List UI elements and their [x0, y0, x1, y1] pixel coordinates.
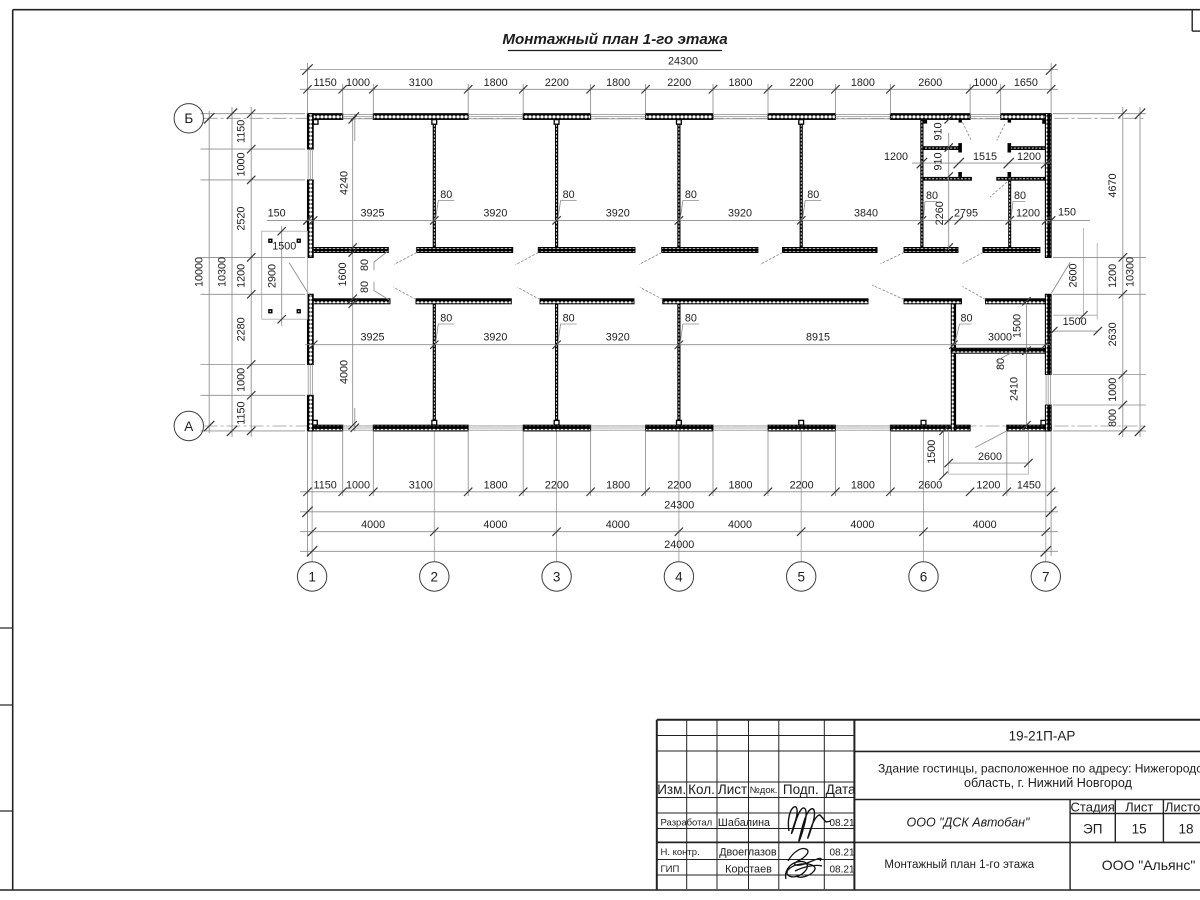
svg-text:2900: 2900 — [267, 264, 279, 288]
svg-text:4000: 4000 — [606, 519, 630, 531]
svg-text:1800: 1800 — [728, 77, 752, 89]
svg-text:150: 150 — [1058, 206, 1076, 218]
svg-text:80: 80 — [807, 189, 819, 201]
svg-text:Стадия: Стадия — [1071, 800, 1115, 815]
svg-text:10300: 10300 — [1125, 257, 1137, 287]
svg-text:2630: 2630 — [1107, 322, 1119, 346]
svg-text:80: 80 — [440, 312, 452, 324]
svg-text:08.21: 08.21 — [829, 818, 854, 829]
svg-text:3920: 3920 — [483, 332, 507, 344]
svg-text:ЭП: ЭП — [1083, 822, 1102, 837]
svg-text:80: 80 — [440, 189, 452, 201]
svg-text:Изм.: Изм. — [657, 782, 686, 797]
svg-text:80: 80 — [685, 312, 697, 324]
svg-text:2795: 2795 — [954, 207, 978, 219]
svg-text:ООО "Альянс": ООО "Альянс" — [1102, 857, 1196, 873]
svg-text:4000: 4000 — [483, 519, 507, 531]
svg-text:1515: 1515 — [973, 151, 997, 163]
svg-text:А: А — [184, 419, 193, 434]
svg-text:24300: 24300 — [664, 499, 694, 511]
svg-text:2200: 2200 — [790, 77, 814, 89]
svg-text:1650: 1650 — [1014, 77, 1038, 89]
svg-text:4000: 4000 — [361, 519, 385, 531]
svg-text:1200: 1200 — [1016, 207, 1040, 219]
svg-text:1000: 1000 — [346, 77, 370, 89]
svg-text:1800: 1800 — [851, 479, 875, 491]
svg-text:Коротаев: Коротаев — [725, 863, 772, 875]
svg-text:Н. контр.: Н. контр. — [661, 847, 700, 858]
svg-text:19-21П-АР: 19-21П-АР — [1009, 729, 1076, 744]
svg-text:80: 80 — [563, 312, 575, 324]
svg-text:1800: 1800 — [484, 479, 508, 491]
svg-text:1600: 1600 — [337, 262, 349, 286]
svg-text:1000: 1000 — [346, 479, 370, 491]
svg-text:2260: 2260 — [934, 201, 946, 225]
svg-text:3920: 3920 — [483, 207, 507, 219]
svg-text:910: 910 — [933, 152, 945, 170]
svg-text:3920: 3920 — [606, 332, 630, 344]
svg-text:80: 80 — [926, 190, 938, 202]
svg-text:18: 18 — [1178, 822, 1193, 837]
svg-text:2600: 2600 — [918, 77, 942, 89]
svg-text:1150: 1150 — [236, 401, 248, 424]
svg-text:800: 800 — [1107, 409, 1119, 427]
svg-text:80: 80 — [563, 189, 575, 201]
svg-text:4000: 4000 — [728, 519, 752, 531]
svg-text:Лист: Лист — [718, 782, 747, 797]
svg-text:область, г. Нижний Новгород: область, г. Нижний Новгород — [964, 776, 1133, 790]
svg-text:80: 80 — [359, 259, 371, 271]
svg-text:6: 6 — [920, 569, 928, 584]
svg-text:80: 80 — [960, 312, 972, 324]
svg-text:1200: 1200 — [236, 264, 248, 288]
svg-text:№док.: №док. — [750, 785, 778, 796]
svg-text:2600: 2600 — [978, 451, 1002, 463]
svg-text:1800: 1800 — [728, 479, 752, 491]
svg-text:1200: 1200 — [884, 151, 908, 163]
svg-text:15: 15 — [1132, 822, 1147, 837]
svg-text:3925: 3925 — [360, 332, 384, 344]
svg-text:2600: 2600 — [1068, 263, 1080, 287]
svg-text:4000: 4000 — [850, 519, 874, 531]
svg-text:1500: 1500 — [1012, 314, 1024, 338]
svg-text:1150: 1150 — [313, 77, 336, 89]
svg-text:Шабалина: Шабалина — [718, 817, 770, 829]
svg-text:2200: 2200 — [667, 479, 691, 491]
svg-text:1: 1 — [308, 569, 316, 584]
svg-text:4670: 4670 — [1107, 174, 1119, 198]
svg-text:3100: 3100 — [409, 77, 433, 89]
svg-text:1000: 1000 — [1107, 378, 1119, 402]
svg-text:1500: 1500 — [1063, 316, 1087, 328]
svg-text:Кол.: Кол. — [688, 782, 715, 797]
svg-text:3: 3 — [553, 569, 561, 584]
svg-text:Двоеглазов: Двоеглазов — [719, 847, 777, 859]
svg-text:1000: 1000 — [973, 77, 997, 89]
svg-text:08.21: 08.21 — [829, 848, 854, 859]
svg-text:4000: 4000 — [339, 360, 351, 384]
svg-text:24300: 24300 — [668, 56, 698, 68]
svg-text:Дата: Дата — [826, 782, 856, 797]
svg-text:1000: 1000 — [236, 368, 248, 392]
svg-text:1800: 1800 — [851, 77, 875, 89]
svg-text:Разработал: Разработал — [661, 818, 713, 829]
svg-text:3925: 3925 — [360, 207, 384, 219]
svg-text:1800: 1800 — [484, 77, 508, 89]
svg-text:2200: 2200 — [790, 479, 814, 491]
svg-text:2200: 2200 — [545, 77, 569, 89]
svg-text:1150: 1150 — [236, 120, 248, 143]
svg-text:4240: 4240 — [339, 171, 351, 195]
svg-text:1500: 1500 — [272, 241, 296, 253]
svg-text:1450: 1450 — [1017, 479, 1041, 491]
svg-text:2410: 2410 — [1009, 377, 1021, 401]
svg-text:Монтажный план 1-го этажа: Монтажный план 1-го этажа — [884, 859, 1034, 871]
svg-text:2200: 2200 — [667, 77, 691, 89]
svg-text:ООО "ДСК Автобан": ООО "ДСК Автобан" — [907, 816, 1031, 830]
svg-text:1200: 1200 — [1107, 264, 1119, 288]
svg-text:2280: 2280 — [236, 317, 248, 341]
svg-text:4: 4 — [675, 569, 683, 584]
svg-text:80: 80 — [995, 358, 1007, 370]
svg-text:3920: 3920 — [606, 207, 630, 219]
svg-text:1000: 1000 — [236, 152, 248, 176]
svg-text:10300: 10300 — [217, 257, 229, 287]
svg-text:910: 910 — [933, 122, 945, 140]
svg-text:2600: 2600 — [918, 479, 942, 491]
svg-text:1500: 1500 — [926, 440, 938, 464]
svg-text:80: 80 — [359, 281, 371, 293]
svg-text:80: 80 — [685, 189, 697, 201]
svg-text:Монтажный план 1-го этажа: Монтажный план 1-го этажа — [502, 31, 727, 48]
svg-text:3000: 3000 — [988, 332, 1012, 344]
svg-text:150: 150 — [268, 207, 286, 219]
svg-text:7: 7 — [1042, 569, 1050, 584]
svg-text:2: 2 — [431, 569, 439, 584]
svg-text:5: 5 — [797, 569, 805, 584]
svg-text:80: 80 — [1014, 190, 1026, 202]
svg-text:1150: 1150 — [313, 479, 336, 491]
svg-text:Б: Б — [184, 111, 193, 126]
svg-text:3100: 3100 — [409, 479, 433, 491]
svg-text:8915: 8915 — [806, 332, 830, 344]
svg-text:2200: 2200 — [545, 479, 569, 491]
svg-text:3920: 3920 — [728, 207, 752, 219]
svg-text:24000: 24000 — [664, 539, 694, 551]
svg-text:3840: 3840 — [854, 207, 878, 219]
svg-text:Здание гостинцы, расположенное: Здание гостинцы, расположенное по адресу… — [878, 762, 1200, 776]
svg-text:10000: 10000 — [194, 257, 206, 287]
svg-text:Подп.: Подп. — [783, 782, 819, 797]
svg-text:1200: 1200 — [1017, 151, 1041, 163]
svg-text:1800: 1800 — [606, 77, 630, 89]
svg-text:2520: 2520 — [236, 207, 248, 231]
svg-text:08.21: 08.21 — [829, 864, 854, 875]
svg-text:4000: 4000 — [973, 519, 997, 531]
svg-text:Лист: Лист — [1125, 800, 1153, 815]
svg-text:1200: 1200 — [976, 479, 1000, 491]
svg-text:Листов: Листов — [1165, 800, 1200, 815]
svg-text:1800: 1800 — [606, 479, 630, 491]
svg-text:ГИП: ГИП — [661, 864, 680, 875]
